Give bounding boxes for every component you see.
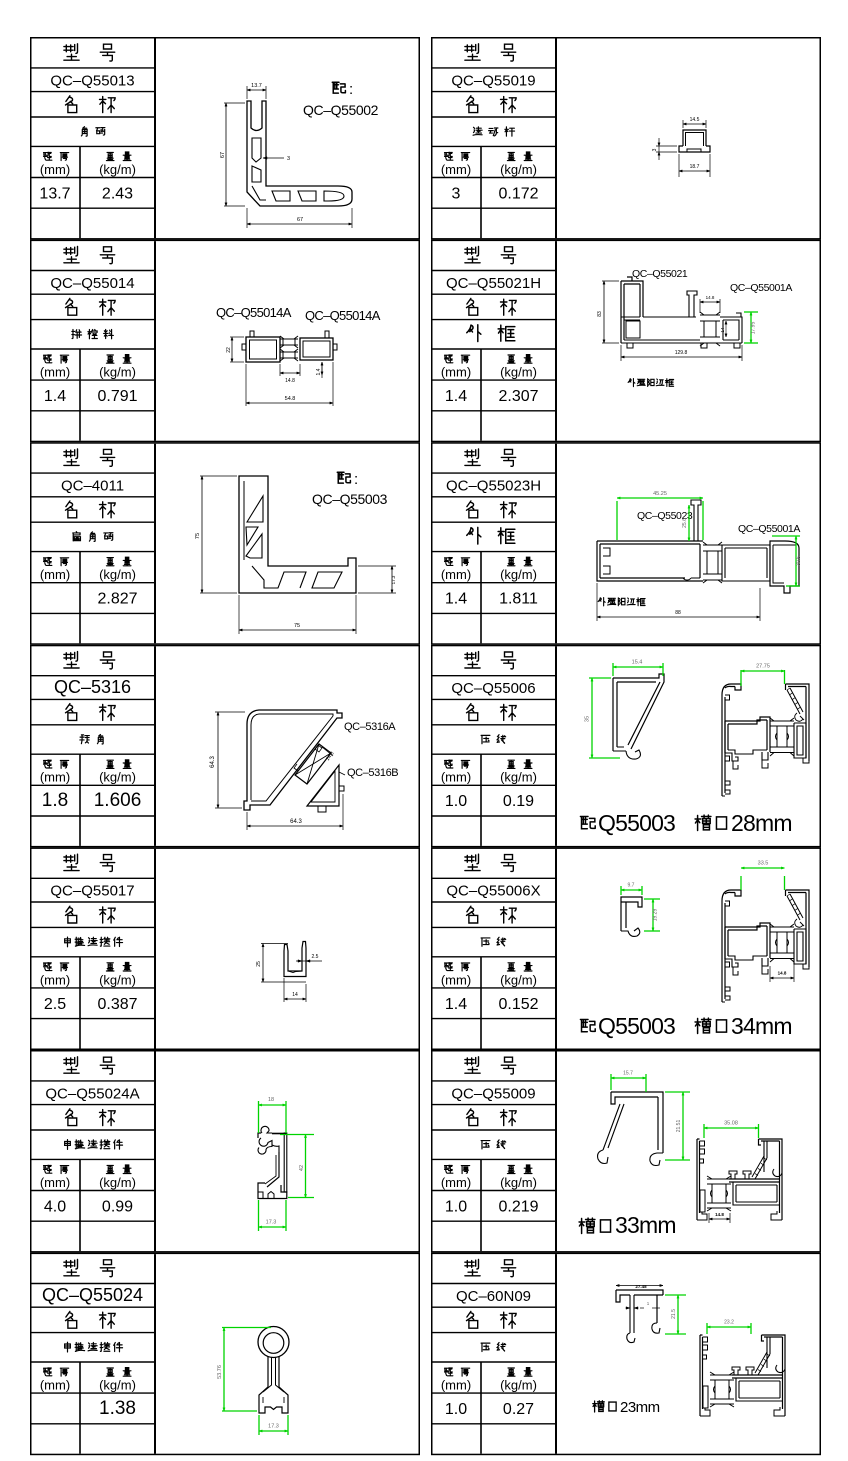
svg-text:23.2: 23.2 xyxy=(724,1320,734,1326)
svg-text:1.0: 1.0 xyxy=(445,793,467,810)
svg-text:19.29: 19.29 xyxy=(653,909,659,922)
svg-text:14.8: 14.8 xyxy=(715,1212,724,1217)
svg-text:13.7: 13.7 xyxy=(251,83,262,89)
svg-text:33.5: 33.5 xyxy=(758,861,769,867)
svg-text:25: 25 xyxy=(256,961,262,967)
svg-text:1.4: 1.4 xyxy=(445,591,467,608)
svg-text:54.8: 54.8 xyxy=(285,396,296,402)
svg-text:33mm: 33mm xyxy=(615,1212,676,1238)
svg-text:0.219: 0.219 xyxy=(498,1198,538,1215)
svg-text:27.75: 27.75 xyxy=(756,664,770,670)
svg-text:(mm): (mm) xyxy=(441,1378,471,1393)
svg-text:(kg/m): (kg/m) xyxy=(500,567,537,582)
svg-text:0.172: 0.172 xyxy=(498,185,538,202)
svg-text:QC–4011: QC–4011 xyxy=(61,477,124,494)
svg-text:(mm): (mm) xyxy=(40,567,70,582)
svg-text:34mm: 34mm xyxy=(731,1013,792,1039)
svg-text:14: 14 xyxy=(720,327,725,333)
svg-text:QC–60N09: QC–60N09 xyxy=(456,1288,531,1305)
svg-text:17.3: 17.3 xyxy=(391,575,396,584)
svg-text:QC–Q55014: QC–Q55014 xyxy=(50,275,134,292)
svg-text:21.51: 21.51 xyxy=(676,1120,682,1133)
svg-text:13.7: 13.7 xyxy=(39,185,70,202)
svg-text:3: 3 xyxy=(452,185,461,202)
svg-text:35.08: 35.08 xyxy=(724,1121,738,1127)
svg-text:75: 75 xyxy=(195,533,201,539)
svg-text:1.8: 1.8 xyxy=(42,790,68,811)
svg-text:QC–Q55014A: QC–Q55014A xyxy=(216,305,292,320)
svg-text:QC–5316B: QC–5316B xyxy=(347,767,398,779)
svg-text:QC–5316A: QC–5316A xyxy=(344,721,396,733)
svg-text:0.99: 0.99 xyxy=(102,1198,133,1215)
svg-text:4.0: 4.0 xyxy=(44,1198,66,1215)
svg-text:QC–Q55021: QC–Q55021 xyxy=(632,268,688,280)
svg-text:QC–Q55024A: QC–Q55024A xyxy=(45,1085,139,1102)
svg-text:15.7: 15.7 xyxy=(623,1071,633,1077)
svg-text:1.38: 1.38 xyxy=(99,1398,136,1419)
svg-text:QC–Q55006: QC–Q55006 xyxy=(451,680,535,697)
svg-text:83: 83 xyxy=(597,311,603,317)
svg-text::: : xyxy=(354,471,358,488)
svg-text:(mm): (mm) xyxy=(441,567,471,582)
svg-text:22: 22 xyxy=(226,347,232,353)
svg-text:67: 67 xyxy=(220,152,226,158)
svg-text:53.76: 53.76 xyxy=(217,1365,223,1379)
svg-text:Q55003: Q55003 xyxy=(598,810,675,836)
svg-text:QC–Q55001A: QC–Q55001A xyxy=(730,282,792,294)
svg-text:QC–Q55006X: QC–Q55006X xyxy=(446,883,540,900)
svg-text:(kg/m): (kg/m) xyxy=(99,365,136,380)
svg-text:14.8: 14.8 xyxy=(706,295,715,300)
svg-text:17.95: 17.95 xyxy=(751,322,757,335)
svg-text:(kg/m): (kg/m) xyxy=(99,1378,136,1393)
svg-text::: : xyxy=(349,81,353,98)
svg-text:(mm): (mm) xyxy=(40,770,70,785)
svg-text:27.48: 27.48 xyxy=(635,1284,647,1289)
svg-text:75: 75 xyxy=(294,623,300,629)
svg-text:2.5: 2.5 xyxy=(312,954,319,960)
svg-text:(mm): (mm) xyxy=(441,162,471,177)
svg-text:QC–Q55017: QC–Q55017 xyxy=(50,883,134,900)
svg-text:64.3: 64.3 xyxy=(210,756,216,768)
svg-text:0.791: 0.791 xyxy=(97,388,137,405)
svg-text:1.606: 1.606 xyxy=(94,790,142,811)
svg-text:QC–Q55009: QC–Q55009 xyxy=(451,1085,535,1102)
svg-text:45.25: 45.25 xyxy=(653,491,667,497)
svg-text:0.27: 0.27 xyxy=(503,1401,534,1418)
svg-text:67: 67 xyxy=(297,217,303,223)
svg-text:(kg/m): (kg/m) xyxy=(500,365,537,380)
svg-text:17.3: 17.3 xyxy=(268,1424,279,1430)
svg-text:9.7: 9.7 xyxy=(628,883,635,889)
svg-text:(mm): (mm) xyxy=(40,1175,70,1190)
svg-text:2.43: 2.43 xyxy=(102,185,133,202)
svg-text:(mm): (mm) xyxy=(40,1378,70,1393)
svg-text:(mm): (mm) xyxy=(441,770,471,785)
svg-text:QC–Q55019: QC–Q55019 xyxy=(451,72,535,89)
svg-text:(mm): (mm) xyxy=(40,365,70,380)
svg-text:14: 14 xyxy=(292,992,298,998)
svg-text:(kg/m): (kg/m) xyxy=(500,770,537,785)
svg-text:15.4: 15.4 xyxy=(632,660,643,666)
svg-text:23mm: 23mm xyxy=(620,1399,660,1416)
svg-text:(mm): (mm) xyxy=(441,1175,471,1190)
svg-text:14.8: 14.8 xyxy=(285,378,295,384)
svg-text:(mm): (mm) xyxy=(441,972,471,987)
svg-text:30.5: 30.5 xyxy=(796,556,802,566)
svg-text:2.827: 2.827 xyxy=(97,591,137,608)
svg-text:QC–5316: QC–5316 xyxy=(54,677,131,697)
svg-text:(mm): (mm) xyxy=(40,972,70,987)
svg-text:1.4: 1.4 xyxy=(44,388,66,405)
svg-text:1.0: 1.0 xyxy=(445,1401,467,1418)
svg-text:0.387: 0.387 xyxy=(97,996,137,1013)
svg-text:42: 42 xyxy=(299,1165,305,1171)
svg-text:88: 88 xyxy=(675,610,681,616)
svg-text:0.19: 0.19 xyxy=(503,793,534,810)
svg-text:(kg/m): (kg/m) xyxy=(99,972,136,987)
svg-text:28mm: 28mm xyxy=(731,810,792,836)
svg-text:(kg/m): (kg/m) xyxy=(500,1378,537,1393)
svg-text:(kg/m): (kg/m) xyxy=(500,972,537,987)
svg-text:3: 3 xyxy=(652,148,658,151)
svg-text:(kg/m): (kg/m) xyxy=(500,162,537,177)
svg-text:(kg/m): (kg/m) xyxy=(99,770,136,785)
svg-text:QC–Q55014A: QC–Q55014A xyxy=(305,308,381,323)
svg-text:(mm): (mm) xyxy=(441,365,471,380)
svg-text:QC–Q55021H: QC–Q55021H xyxy=(446,275,541,292)
svg-text:64.3: 64.3 xyxy=(290,819,302,825)
svg-text:QC–Q55003: QC–Q55003 xyxy=(312,491,388,507)
svg-text:1.4: 1.4 xyxy=(445,388,467,405)
svg-text:(mm): (mm) xyxy=(40,162,70,177)
svg-text:1.811: 1.811 xyxy=(499,591,538,608)
svg-text:QC–Q55013: QC–Q55013 xyxy=(50,72,134,89)
svg-text:2.307: 2.307 xyxy=(498,388,538,405)
svg-text:QC–Q55024: QC–Q55024 xyxy=(42,1285,143,1305)
svg-text:14.8: 14.8 xyxy=(778,971,787,976)
svg-text:QC–Q55023H: QC–Q55023H xyxy=(446,477,541,494)
svg-text:(kg/m): (kg/m) xyxy=(99,567,136,582)
svg-text:21.5: 21.5 xyxy=(671,1309,677,1319)
svg-text:(kg/m): (kg/m) xyxy=(500,1175,537,1190)
svg-text:17.3: 17.3 xyxy=(266,1220,277,1226)
svg-text:(kg/m): (kg/m) xyxy=(99,1175,136,1190)
svg-text:1.0: 1.0 xyxy=(445,1198,467,1215)
svg-text:1.4: 1.4 xyxy=(445,996,467,1013)
svg-text:QC–Q55002: QC–Q55002 xyxy=(303,102,379,118)
svg-text:18: 18 xyxy=(268,1097,274,1103)
svg-text:1.4: 1.4 xyxy=(316,368,322,375)
svg-text:129.8: 129.8 xyxy=(675,350,688,356)
svg-text:(kg/m): (kg/m) xyxy=(99,162,136,177)
svg-text:35: 35 xyxy=(585,716,591,722)
svg-text:25.6: 25.6 xyxy=(682,518,688,528)
svg-text:3: 3 xyxy=(287,156,290,162)
svg-text:18.7: 18.7 xyxy=(690,164,700,170)
svg-text:0.152: 0.152 xyxy=(498,996,538,1013)
svg-text:Q55003: Q55003 xyxy=(598,1013,675,1039)
svg-text:QC–Q55001A: QC–Q55001A xyxy=(738,523,800,535)
svg-text:14.5: 14.5 xyxy=(690,117,700,123)
svg-text:2.5: 2.5 xyxy=(44,996,66,1013)
